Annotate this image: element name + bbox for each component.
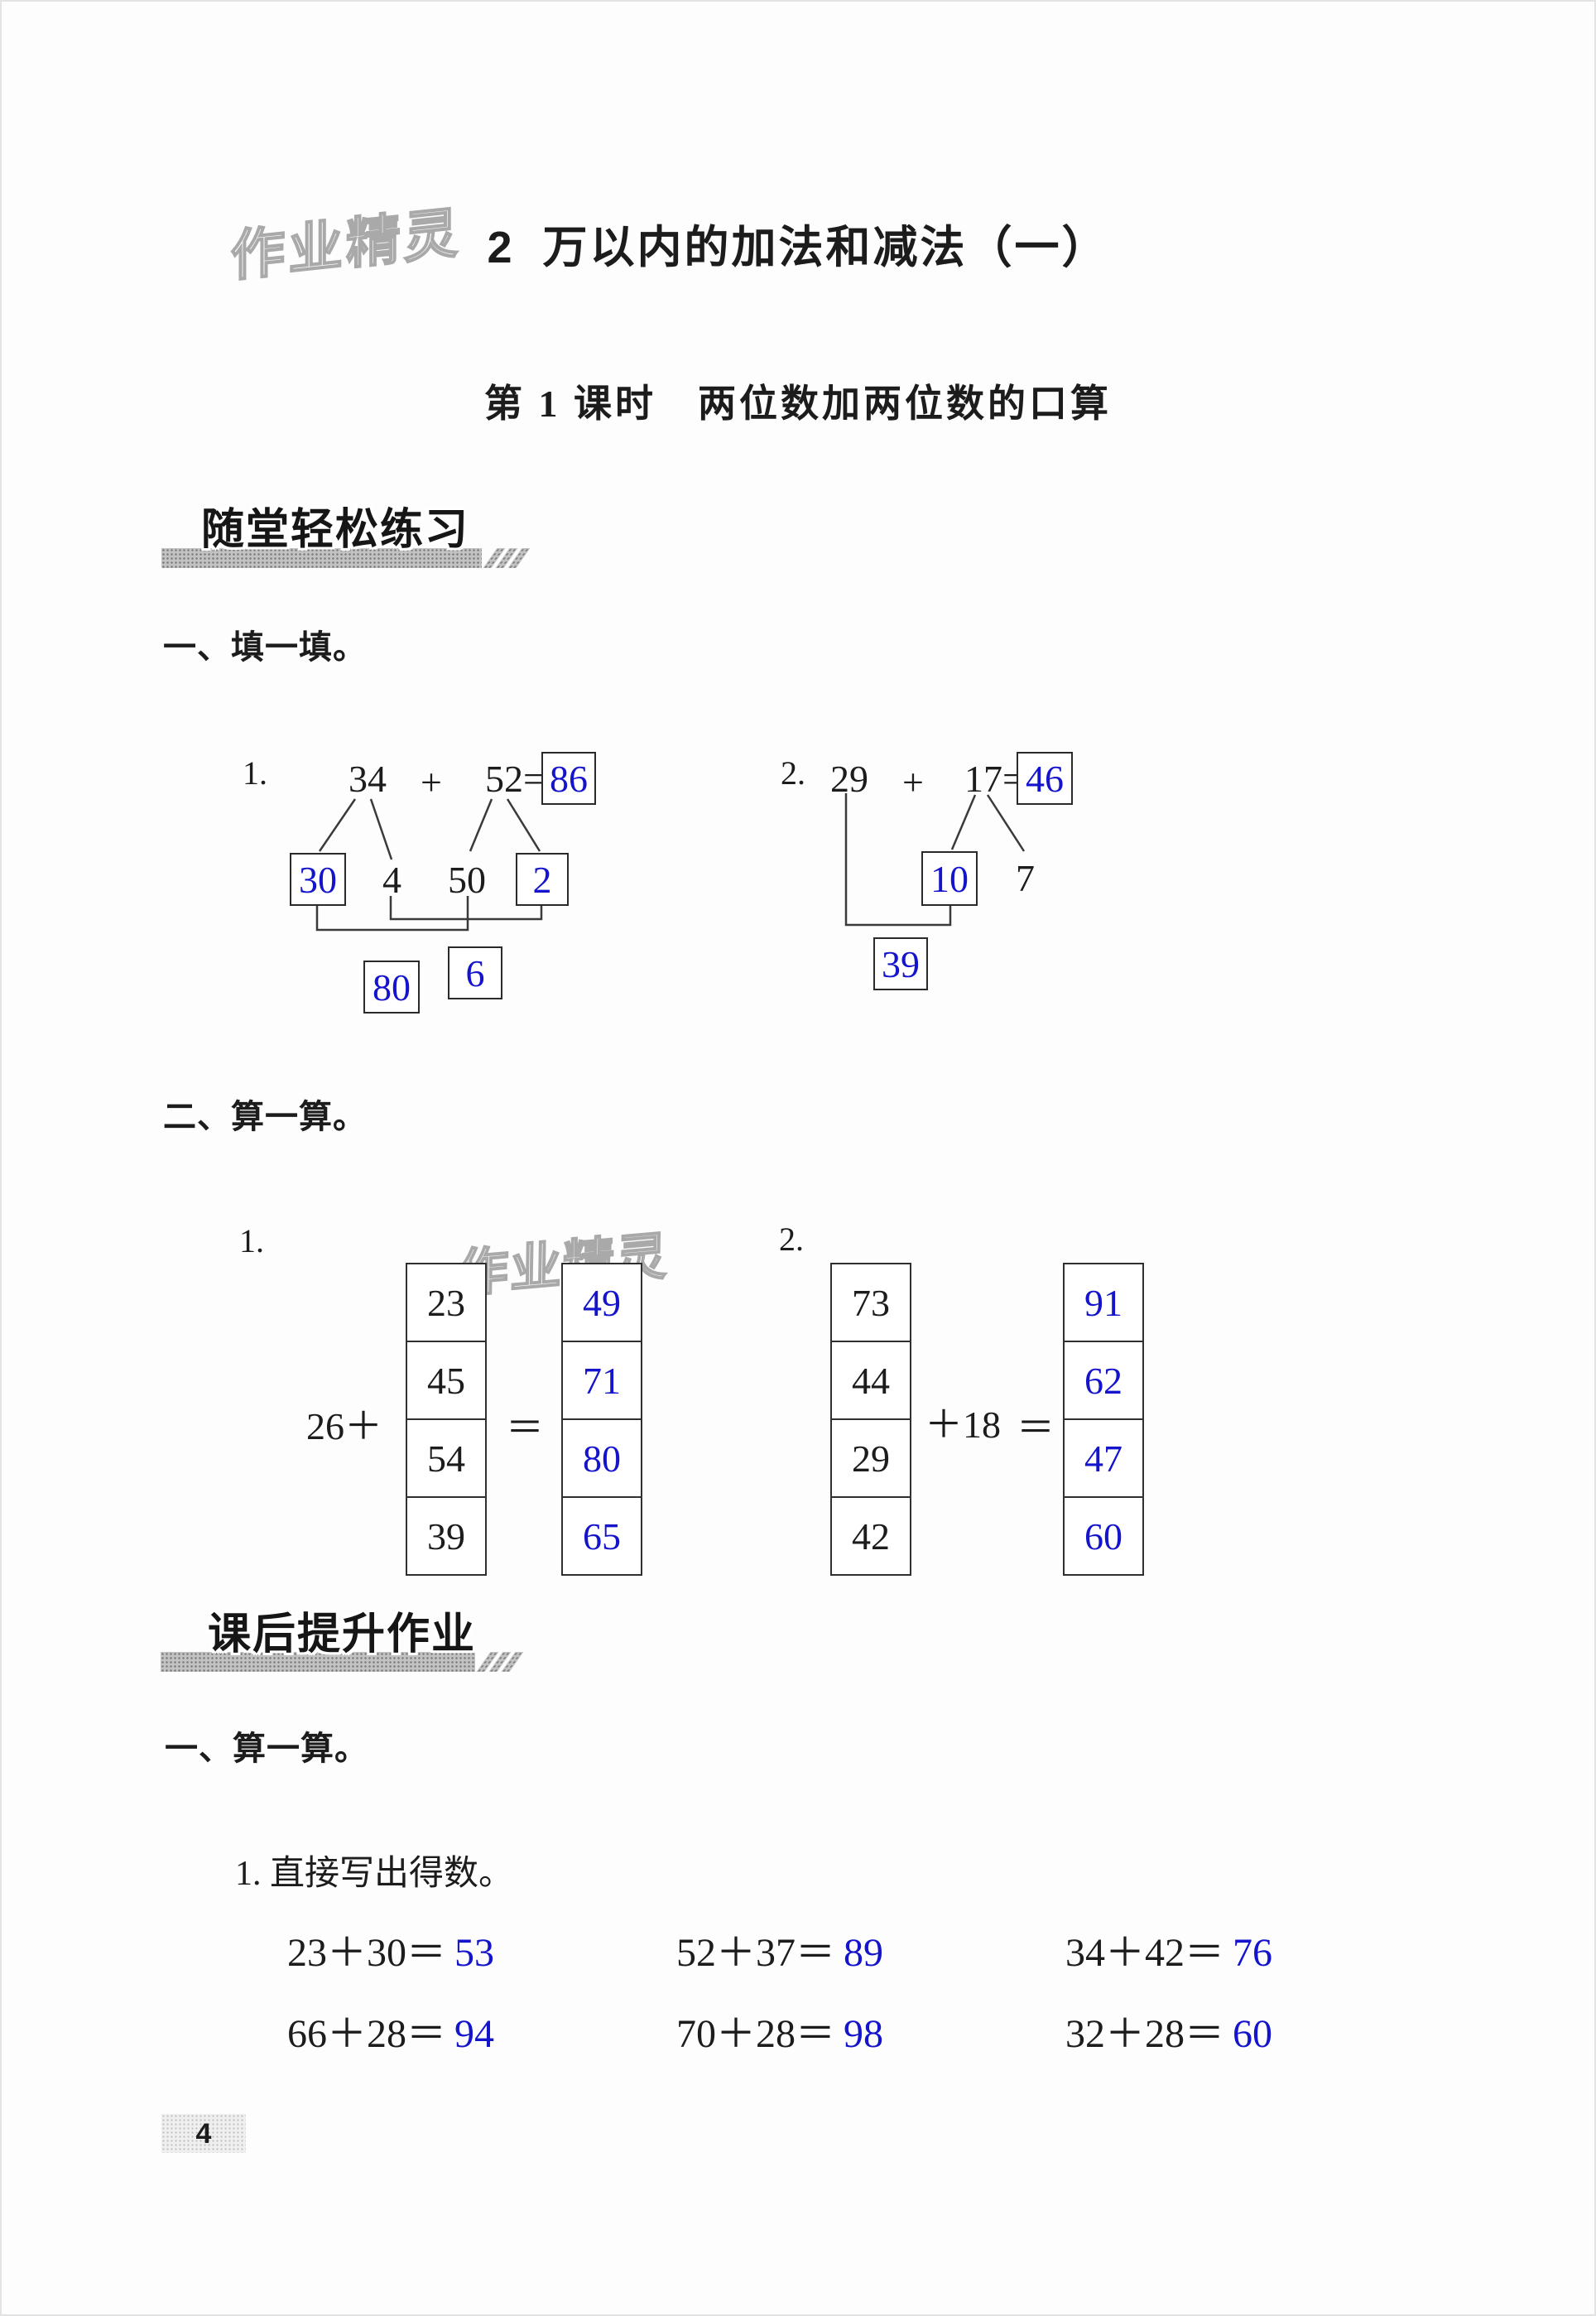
ones-value: 7 bbox=[1016, 859, 1035, 898]
equation: 66＋28＝94 bbox=[287, 2015, 494, 2054]
equation-expression: 66＋28＝ bbox=[287, 2012, 446, 2056]
equation-expression: 70＋28＝ bbox=[676, 2012, 835, 2056]
equation-answer: 94 bbox=[454, 2012, 494, 2056]
table-cell: 44 bbox=[832, 1342, 910, 1420]
equation: 52＋37＝89 bbox=[676, 1933, 883, 1973]
answer-box-tens: 10 bbox=[921, 851, 978, 906]
chapter-title: 万以内的加法和减法（一） bbox=[543, 223, 1109, 272]
table-cell: 54 bbox=[407, 1420, 485, 1498]
table-cell: 45 bbox=[407, 1342, 485, 1420]
problem-label: 1. bbox=[243, 757, 267, 790]
problem-label: 2. bbox=[781, 757, 805, 790]
equation-answer: 89 bbox=[844, 1931, 883, 1975]
answer-box-tens: 30 bbox=[290, 853, 346, 906]
banner-classwork: 随堂轻松练习 bbox=[201, 508, 469, 551]
equation-answer: 53 bbox=[454, 1931, 494, 1975]
heading-fill-in: 一、填一填。 bbox=[163, 631, 367, 664]
table-cell: 29 bbox=[832, 1420, 910, 1498]
equation: 23＋30＝53 bbox=[287, 1933, 494, 1973]
answer-cell: 60 bbox=[1065, 1498, 1142, 1574]
equation-answer: 60 bbox=[1233, 2012, 1272, 2056]
answer-cell: 62 bbox=[1065, 1342, 1142, 1420]
chapter-heading: 2万以内的加法和减法（一） bbox=[0, 225, 1596, 270]
answer-cell: 71 bbox=[563, 1342, 641, 1420]
equation-expression: 23＋30＝ bbox=[287, 1931, 446, 1975]
table-cell: 23 bbox=[407, 1264, 485, 1342]
table2-suffix: ＋18 bbox=[925, 1406, 1001, 1444]
addend-second: 52= bbox=[485, 760, 545, 798]
table1-prefix: 26＋ bbox=[306, 1408, 382, 1446]
chapter-number: 2 bbox=[487, 223, 514, 272]
answer-box-sum: 46 bbox=[1017, 752, 1073, 805]
equation-expression: 34＋42＝ bbox=[1065, 1931, 1224, 1975]
addend-second: 17= bbox=[964, 760, 1024, 798]
equation-answer: 76 bbox=[1233, 1931, 1272, 1975]
lesson-title: 第 1 课时 两位数加两位数的口算 bbox=[0, 385, 1596, 423]
answer-cell: 47 bbox=[1065, 1420, 1142, 1498]
answer-box-tens-sum: 80 bbox=[363, 961, 420, 1014]
table2-addends-column: 73 44 29 42 bbox=[830, 1263, 911, 1576]
equation: 32＋28＝60 bbox=[1065, 2015, 1272, 2054]
page-number: 4 bbox=[161, 2114, 246, 2153]
answer-cell: 65 bbox=[563, 1498, 641, 1574]
banner-homework: 课后提升作业 bbox=[208, 1613, 476, 1656]
equation: 34＋42＝76 bbox=[1065, 1933, 1272, 1973]
answer-box-ones-sum: 6 bbox=[448, 946, 502, 999]
plus-sign: + bbox=[902, 763, 924, 802]
table1-sums-column: 49 71 80 65 bbox=[561, 1263, 642, 1576]
table-cell: 39 bbox=[407, 1498, 485, 1574]
answer-cell: 80 bbox=[563, 1420, 641, 1498]
ones-value: 4 bbox=[382, 861, 401, 899]
table-cell: 42 bbox=[832, 1498, 910, 1574]
heading-calculate: 二、算一算。 bbox=[163, 1100, 367, 1134]
addend-first: 29 bbox=[830, 760, 868, 798]
answer-box-partial-sum: 39 bbox=[873, 937, 928, 990]
equals-sign: ＝ bbox=[1017, 1409, 1055, 1447]
addend-first: 34 bbox=[349, 760, 387, 798]
answer-box-sum: 86 bbox=[541, 752, 596, 805]
answer-cell: 91 bbox=[1065, 1264, 1142, 1342]
equals-sign: ＝ bbox=[506, 1409, 544, 1447]
heading-write-answers: 1. 直接写出得数。 bbox=[235, 1856, 513, 1891]
answer-cell: 49 bbox=[563, 1264, 641, 1342]
problem-label: 2. bbox=[779, 1223, 804, 1256]
equation-answer: 98 bbox=[844, 2012, 883, 2056]
equation-expression: 32＋28＝ bbox=[1065, 2012, 1224, 2056]
problem-label: 1. bbox=[239, 1225, 264, 1258]
answer-box-ones: 2 bbox=[516, 853, 569, 906]
plus-sign: + bbox=[421, 763, 442, 802]
worksheet-page: 作业精灵 作业精灵 2万以内的加法和减法（一） 第 1 课时 两位数加两位数的口… bbox=[0, 0, 1596, 2316]
table2-sums-column: 91 62 47 60 bbox=[1063, 1263, 1144, 1576]
equation: 70＋28＝98 bbox=[676, 2015, 883, 2054]
equation-expression: 52＋37＝ bbox=[676, 1931, 835, 1975]
table1-addends-column: 23 45 54 39 bbox=[406, 1263, 487, 1576]
tens-value: 50 bbox=[448, 861, 486, 899]
heading-calculate-homework: 一、算一算。 bbox=[165, 1732, 368, 1765]
table-cell: 73 bbox=[832, 1264, 910, 1342]
